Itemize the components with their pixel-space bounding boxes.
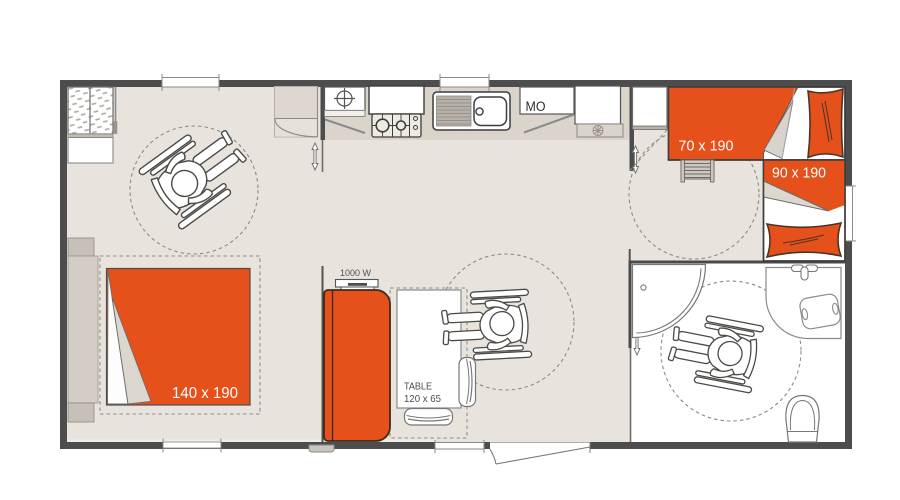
svg-text:120 x 65: 120 x 65 — [404, 393, 441, 405]
svg-text:TABLE: TABLE — [404, 381, 432, 393]
svg-text:MO: MO — [526, 99, 546, 114]
svg-text:1000 W: 1000 W — [340, 268, 371, 279]
svg-text:90 x 190: 90 x 190 — [772, 166, 826, 182]
svg-text:140 x 190: 140 x 190 — [172, 385, 238, 402]
svg-text:70 x 190: 70 x 190 — [679, 139, 734, 155]
